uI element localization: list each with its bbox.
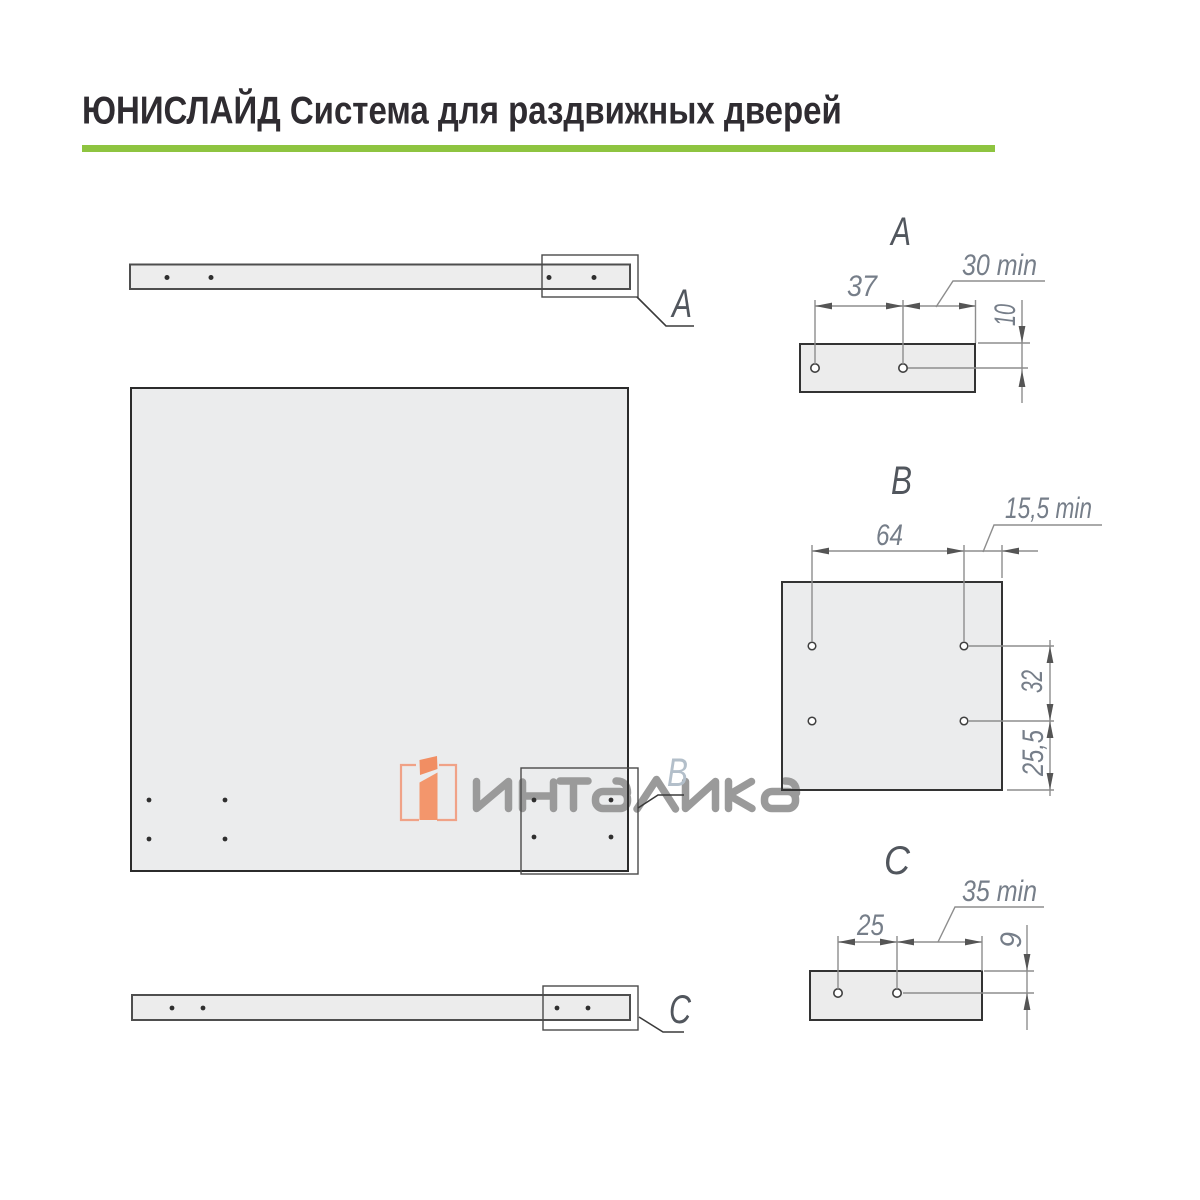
- svg-text:25,5: 25,5: [1017, 730, 1050, 777]
- svg-text:A: A: [890, 210, 911, 254]
- svg-text:25: 25: [856, 909, 884, 942]
- svg-text:35 min: 35 min: [962, 875, 1037, 908]
- svg-text:32: 32: [1016, 670, 1049, 693]
- svg-text:A: A: [671, 282, 692, 326]
- svg-text:В: В: [667, 751, 688, 795]
- svg-text:37: 37: [847, 270, 878, 303]
- svg-text:С: С: [669, 988, 692, 1032]
- svg-text:15,5 min: 15,5 min: [1005, 492, 1092, 525]
- svg-text:64: 64: [876, 519, 903, 552]
- svg-text:30 min: 30 min: [962, 249, 1037, 282]
- svg-text:9: 9: [995, 932, 1028, 948]
- svg-text:ЮНИСЛАЙД Система для раздвижны: ЮНИСЛАЙД Система для раздвижных дверей: [82, 87, 842, 132]
- svg-text:С: С: [884, 839, 911, 883]
- svg-text:10: 10: [989, 304, 1022, 326]
- svg-text:В: В: [891, 459, 912, 503]
